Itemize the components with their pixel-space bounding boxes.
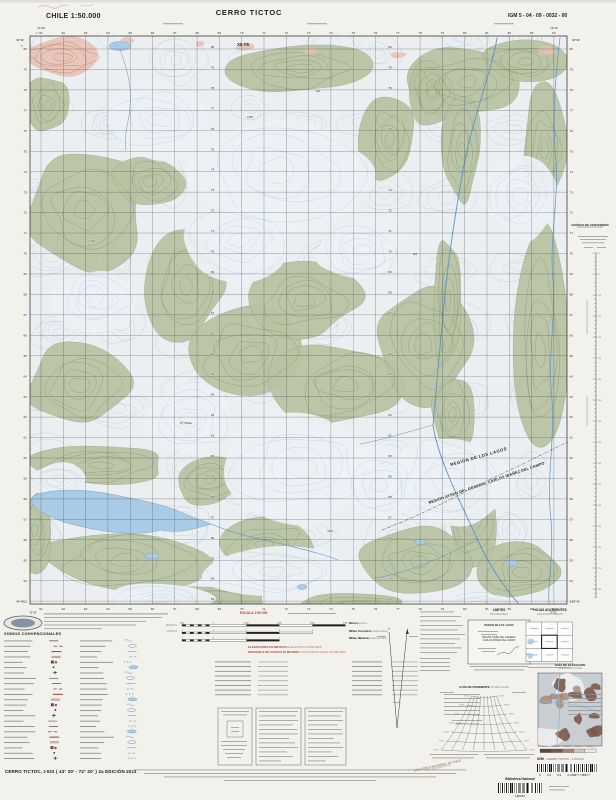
elevation-note-1-en: ELEVATIONS IN METERS (287, 645, 321, 649)
svg-text:76: 76 (374, 607, 378, 611)
svg-text:69: 69 (211, 270, 215, 274)
svg-text:55: 55 (388, 556, 392, 560)
svg-text:77: 77 (396, 607, 400, 611)
scale-label: ESCALA 1:50.000 (240, 612, 267, 616)
legend-title: SIGNOS CONVENCIONALES (4, 632, 61, 636)
svg-text:77: 77 (570, 108, 574, 112)
svg-text:74: 74 (24, 170, 28, 174)
scalebar-label-3-en: Nautical Miles (371, 637, 387, 640)
svg-text:62: 62 (24, 415, 28, 419)
svg-text:54: 54 (570, 579, 574, 583)
header-sheet-code: IGM 5 - 04 - 09 - 0032 - 00 (508, 14, 567, 20)
svg-text:67: 67 (388, 311, 392, 315)
svg-text:71: 71 (262, 31, 266, 35)
elevation-note-1: ELEVACIONES EN METROS ELEVATIONS IN METE… (248, 646, 322, 649)
svg-text:58: 58 (570, 497, 574, 501)
svg-text:67: 67 (570, 313, 574, 317)
header-country-scale: CHILE 1:50.000 (46, 13, 101, 21)
svg-text:1255: 1255 (247, 115, 253, 119)
svg-text:79: 79 (441, 607, 445, 611)
svg-text:68: 68 (211, 290, 215, 294)
svg-text:72: 72 (24, 211, 28, 215)
svg-text:69: 69 (388, 270, 392, 274)
svg-text:43°30': 43°30' (572, 38, 580, 42)
svg-text:57: 57 (570, 517, 574, 521)
svg-text:63: 63 (570, 395, 574, 399)
svg-text:62: 62 (211, 413, 215, 417)
svg-text:75: 75 (211, 147, 215, 151)
svg-text:56: 56 (570, 538, 574, 542)
svg-text:71: 71 (388, 229, 392, 233)
svg-text:61: 61 (24, 436, 28, 440)
svg-text:57: 57 (24, 517, 28, 521)
svg-text:60: 60 (24, 456, 28, 460)
svg-text:72: 72 (211, 209, 215, 213)
library-label: Biblioteca Nacional (496, 778, 544, 782)
svg-text:79: 79 (24, 68, 28, 72)
svg-text:64: 64 (106, 607, 110, 611)
svg-text:75: 75 (351, 31, 355, 35)
svg-text:63: 63 (84, 31, 88, 35)
svg-text:69: 69 (218, 31, 222, 35)
svg-text:78: 78 (24, 88, 28, 92)
svg-text:73: 73 (388, 188, 392, 192)
svg-text:80: 80 (388, 45, 392, 49)
svg-text:82: 82 (508, 31, 512, 35)
svg-text:71: 71 (570, 231, 574, 235)
slope-guide-title-es: GUÍA DE PENDIENTE (459, 685, 489, 689)
igm-barcode-digits: 5 04 09 0032 00 (539, 774, 587, 777)
svg-text:73: 73 (570, 190, 574, 194)
svg-text:74: 74 (329, 607, 333, 611)
svg-text:*: * (388, 627, 390, 632)
elevation-note-2-en: CONTOUR INTERVAL 50 METERS (300, 650, 346, 654)
svg-text:79: 79 (441, 31, 445, 35)
svg-text:Cº Tictoc: Cº Tictoc (180, 421, 192, 425)
svg-text:76: 76 (388, 127, 392, 131)
svg-text:80: 80 (24, 47, 28, 51)
svg-text:80: 80 (463, 31, 467, 35)
svg-text:78: 78 (418, 607, 422, 611)
scalebar-unit-yardas: YARDAS (155, 631, 177, 634)
svg-text:986: 986 (413, 252, 418, 256)
svg-text:65: 65 (388, 352, 392, 356)
scalebar-label-3: Millas Náuticas Nautical Miles (349, 637, 387, 641)
svg-text:54: 54 (211, 577, 215, 581)
svg-text:75: 75 (24, 149, 28, 153)
svg-text:62: 62 (570, 415, 574, 419)
conversion-graph-title-en: CONVERSION GRAPH (564, 227, 616, 230)
limites-box (468, 620, 530, 670)
svg-text:75: 75 (351, 607, 355, 611)
svg-text:73: 73 (307, 607, 311, 611)
svg-text:73: 73 (307, 31, 311, 35)
svg-text:60: 60 (570, 456, 574, 460)
svg-text:56: 56 (388, 536, 392, 540)
svg-text:72: 72 (388, 209, 392, 213)
svg-text:57: 57 (388, 515, 392, 519)
svg-text:78: 78 (418, 31, 422, 35)
svg-text:70: 70 (388, 250, 392, 254)
svg-text:66: 66 (24, 333, 28, 337)
igm-abbrev: IGM (537, 757, 544, 761)
svg-text:72°30': 72°30' (37, 26, 45, 30)
svg-text:61: 61 (211, 434, 215, 438)
svg-text:64: 64 (388, 372, 392, 376)
svg-text:72: 72 (285, 31, 289, 35)
elevation-note-1-es: ELEVACIONES EN METROS (248, 645, 287, 649)
svg-text:74: 74 (570, 170, 574, 174)
scalebar-label-2-es: Millas Terrestres (349, 629, 372, 633)
svg-text:84: 84 (552, 31, 556, 35)
map-canvas: 6161626263636464656566666767686869697070… (0, 0, 616, 800)
svg-text:65: 65 (211, 352, 215, 356)
svg-text:X5 Y5: X5 Y5 (237, 42, 249, 47)
svg-text:81: 81 (485, 31, 489, 35)
slope-guide-title: GUÍA DE PENDIENTE SLOPE GUIDE (424, 686, 544, 689)
svg-text:59: 59 (211, 474, 215, 478)
svg-text:60: 60 (388, 454, 392, 458)
svg-text:66: 66 (151, 31, 155, 35)
svg-text:79: 79 (570, 68, 574, 72)
svg-text:77: 77 (388, 106, 392, 110)
svg-text:70: 70 (240, 31, 244, 35)
svg-text:56: 56 (211, 536, 215, 540)
svg-text:69: 69 (218, 607, 222, 611)
svg-text:80: 80 (570, 47, 574, 51)
svg-text:73: 73 (211, 188, 215, 192)
scalebar-label-2: Millas Terrestres Statute Miles (349, 630, 388, 634)
svg-text:65: 65 (128, 607, 132, 611)
svg-text:43°40': 43°40' (572, 600, 580, 604)
slope-guide-title-en: SLOPE GUIDE (491, 686, 509, 689)
scalebar-label-2-en: Statute Miles (373, 630, 388, 633)
svg-text:76: 76 (374, 31, 378, 35)
svg-text:68: 68 (24, 293, 28, 297)
svg-text:62: 62 (388, 413, 392, 417)
svg-text:74: 74 (388, 168, 392, 172)
svg-text:58: 58 (388, 495, 392, 499)
svg-text:65: 65 (24, 354, 28, 358)
svg-text:77: 77 (24, 108, 28, 112)
svg-text:59: 59 (388, 474, 392, 478)
svg-text:56: 56 (24, 538, 28, 542)
svg-text:68: 68 (388, 290, 392, 294)
svg-text:55: 55 (570, 558, 574, 562)
svg-text:67: 67 (173, 607, 177, 611)
svg-text:54: 54 (388, 577, 392, 581)
elevation-guide-title: GUÍA DE ELEVACIÓN ELEVATION GUIDE (532, 664, 608, 671)
svg-text:71: 71 (211, 229, 215, 233)
scalebar-label-3-es: Millas Náuticas (349, 636, 370, 640)
svg-text:62: 62 (62, 607, 66, 611)
elevation-note-2: INTERVALO DE CURVAS 50 METROS CONTOUR IN… (248, 651, 346, 654)
svg-text:66: 66 (211, 331, 215, 335)
svg-text:62: 62 (62, 31, 66, 35)
svg-text:67: 67 (24, 313, 28, 317)
scalebar-label-1: Metros Meters (349, 622, 367, 626)
svg-text:68: 68 (570, 293, 574, 297)
svg-text:59: 59 (24, 477, 28, 481)
svg-text:64: 64 (106, 31, 110, 35)
hojas-title: HOJAS ADYACENTES ADJOINING SHEETS (514, 609, 586, 616)
hojas-title-en: ADJOINING SHEETS (514, 613, 586, 616)
igm-product-line: IGM - CERRO TICTOC - 1:50.000 (537, 757, 584, 761)
svg-text:78: 78 (388, 86, 392, 90)
svg-text:65: 65 (128, 31, 132, 35)
svg-text:57: 57 (211, 515, 215, 519)
svg-text:69: 69 (24, 272, 28, 276)
svg-text:63: 63 (211, 393, 215, 397)
svg-text:76: 76 (570, 129, 574, 133)
svg-text:43°30': 43°30' (16, 38, 24, 42)
svg-text:60: 60 (211, 454, 215, 458)
svg-text:76: 76 (211, 127, 215, 131)
svg-text:75: 75 (570, 149, 574, 153)
svg-text:74: 74 (211, 168, 215, 172)
elevation-note-2-es: INTERVALO DE CURVAS 50 METROS (248, 650, 299, 654)
conversion-graph-title: GRÁFICO DE CONVERSIÓN CONVERSION GRAPH (564, 224, 616, 230)
svg-text:76: 76 (24, 129, 28, 133)
scalebar-unit-metros: METROS (155, 625, 177, 628)
igm-barcode (537, 764, 597, 773)
svg-text:58: 58 (211, 495, 215, 499)
svg-text:67: 67 (173, 31, 177, 35)
svg-text:69: 69 (570, 272, 574, 276)
svg-text:79: 79 (388, 65, 392, 69)
svg-text:53: 53 (24, 599, 28, 603)
svg-text:68: 68 (195, 31, 199, 35)
svg-text:55: 55 (211, 556, 215, 560)
svg-text:53: 53 (388, 597, 392, 601)
svg-text:70: 70 (24, 252, 28, 256)
svg-text:77: 77 (396, 31, 400, 35)
footer-sheet-title: CERRO TICTOC, I-032 ( 43° 30' - 72° 20' … (5, 769, 137, 774)
svg-text:80: 80 (211, 45, 215, 49)
svg-text:72: 72 (570, 211, 574, 215)
svg-text:64: 64 (570, 374, 574, 378)
svg-text:63: 63 (84, 607, 88, 611)
svg-text:83: 83 (530, 31, 534, 35)
svg-text:75: 75 (388, 147, 392, 151)
elevation-guide-title-en: ELEVATION GUIDE (532, 667, 608, 670)
adjoining-sheets-grid (524, 622, 574, 668)
svg-text:55: 55 (24, 558, 28, 562)
svg-text:73: 73 (24, 190, 28, 194)
igm-product-name: - CERRO TICTOC - 1:50.000 (545, 757, 584, 761)
svg-text:58: 58 (24, 497, 28, 501)
svg-text:68: 68 (195, 607, 199, 611)
limites-region-top: REGIÓN DE LOS LAGOS (468, 625, 530, 628)
svg-text:79: 79 (211, 65, 215, 69)
svg-text:72°30': 72°30' (29, 611, 37, 615)
svg-text:66: 66 (570, 333, 574, 337)
library-number: 192183 (496, 795, 544, 798)
svg-text:1125: 1125 (327, 529, 333, 533)
svg-text:54: 54 (24, 579, 28, 583)
library-barcode (498, 783, 542, 794)
svg-text:844: 844 (316, 89, 321, 93)
svg-text:67: 67 (211, 311, 215, 315)
svg-text:63: 63 (24, 395, 28, 399)
page-title: CERRO TICTOC (149, 9, 349, 18)
svg-text:78: 78 (570, 88, 574, 92)
svg-text:70: 70 (570, 252, 574, 256)
svg-text:78: 78 (211, 86, 215, 90)
svg-text:77: 77 (211, 106, 215, 110)
svg-text:61: 61 (39, 31, 43, 35)
scalebar-label-1-en: Meters (359, 622, 367, 625)
svg-text:43°40': 43°40' (16, 600, 24, 604)
svg-text:61: 61 (388, 434, 392, 438)
svg-text:61: 61 (39, 607, 43, 611)
limites-region-b2: CARLOS IBÁÑEZ DEL CAMPO (468, 640, 530, 643)
svg-text:64: 64 (24, 374, 28, 378)
svg-text:64: 64 (211, 372, 215, 376)
svg-text:70: 70 (211, 250, 215, 254)
svg-text:72: 72 (285, 607, 289, 611)
svg-text:63: 63 (388, 393, 392, 397)
svg-text:66: 66 (151, 607, 155, 611)
scanned-topo-map-sheet: { "header": { "country_scale": "CHILE 1:… (0, 0, 616, 800)
svg-text:74: 74 (329, 31, 333, 35)
svg-text:53: 53 (211, 597, 215, 601)
svg-text:1340: 1340 (89, 239, 95, 243)
svg-text:66: 66 (388, 331, 392, 335)
svg-text:61: 61 (570, 436, 574, 440)
svg-text:71: 71 (24, 231, 28, 235)
svg-text:72°20': 72°20' (550, 26, 558, 30)
scalebar-label-1-es: Metros (349, 621, 358, 625)
svg-text:65: 65 (570, 354, 574, 358)
svg-text:59: 59 (570, 477, 574, 481)
